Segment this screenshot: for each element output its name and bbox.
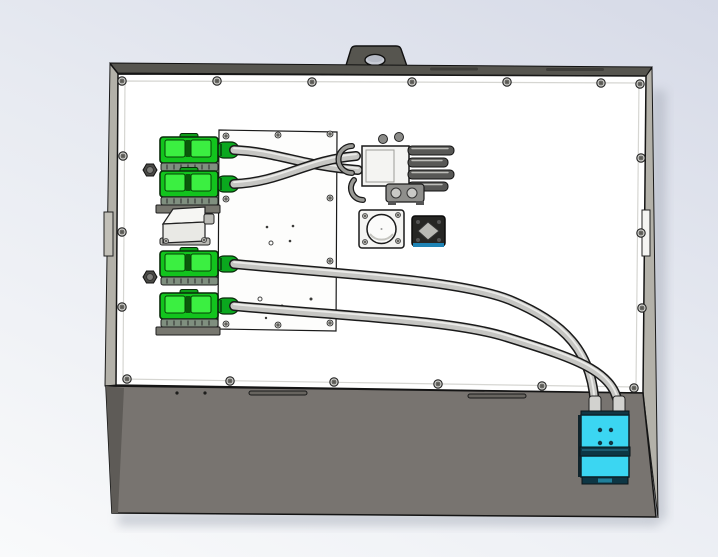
connector-bracket	[156, 327, 220, 335]
base-hole	[203, 391, 206, 394]
square-panel-connector	[412, 216, 445, 247]
enclosure-base	[106, 386, 656, 517]
left-edge-notch	[104, 212, 113, 256]
blue-gasket	[413, 243, 444, 247]
cad-viewport	[0, 0, 718, 557]
hex-nut	[143, 164, 157, 176]
top-rail-inset	[430, 68, 478, 71]
base-slot	[468, 394, 526, 398]
assembly-bolt	[395, 133, 404, 142]
assembly-bolt	[379, 135, 388, 144]
mounting-hole-shade	[367, 55, 382, 62]
hex-nut	[143, 271, 157, 283]
base-hole	[175, 391, 178, 394]
top-rail-inset	[546, 68, 604, 71]
circular-panel-connector	[359, 210, 404, 248]
base-slot	[249, 391, 307, 395]
assembly-render	[0, 0, 718, 557]
cyan-output-connector	[578, 411, 630, 484]
